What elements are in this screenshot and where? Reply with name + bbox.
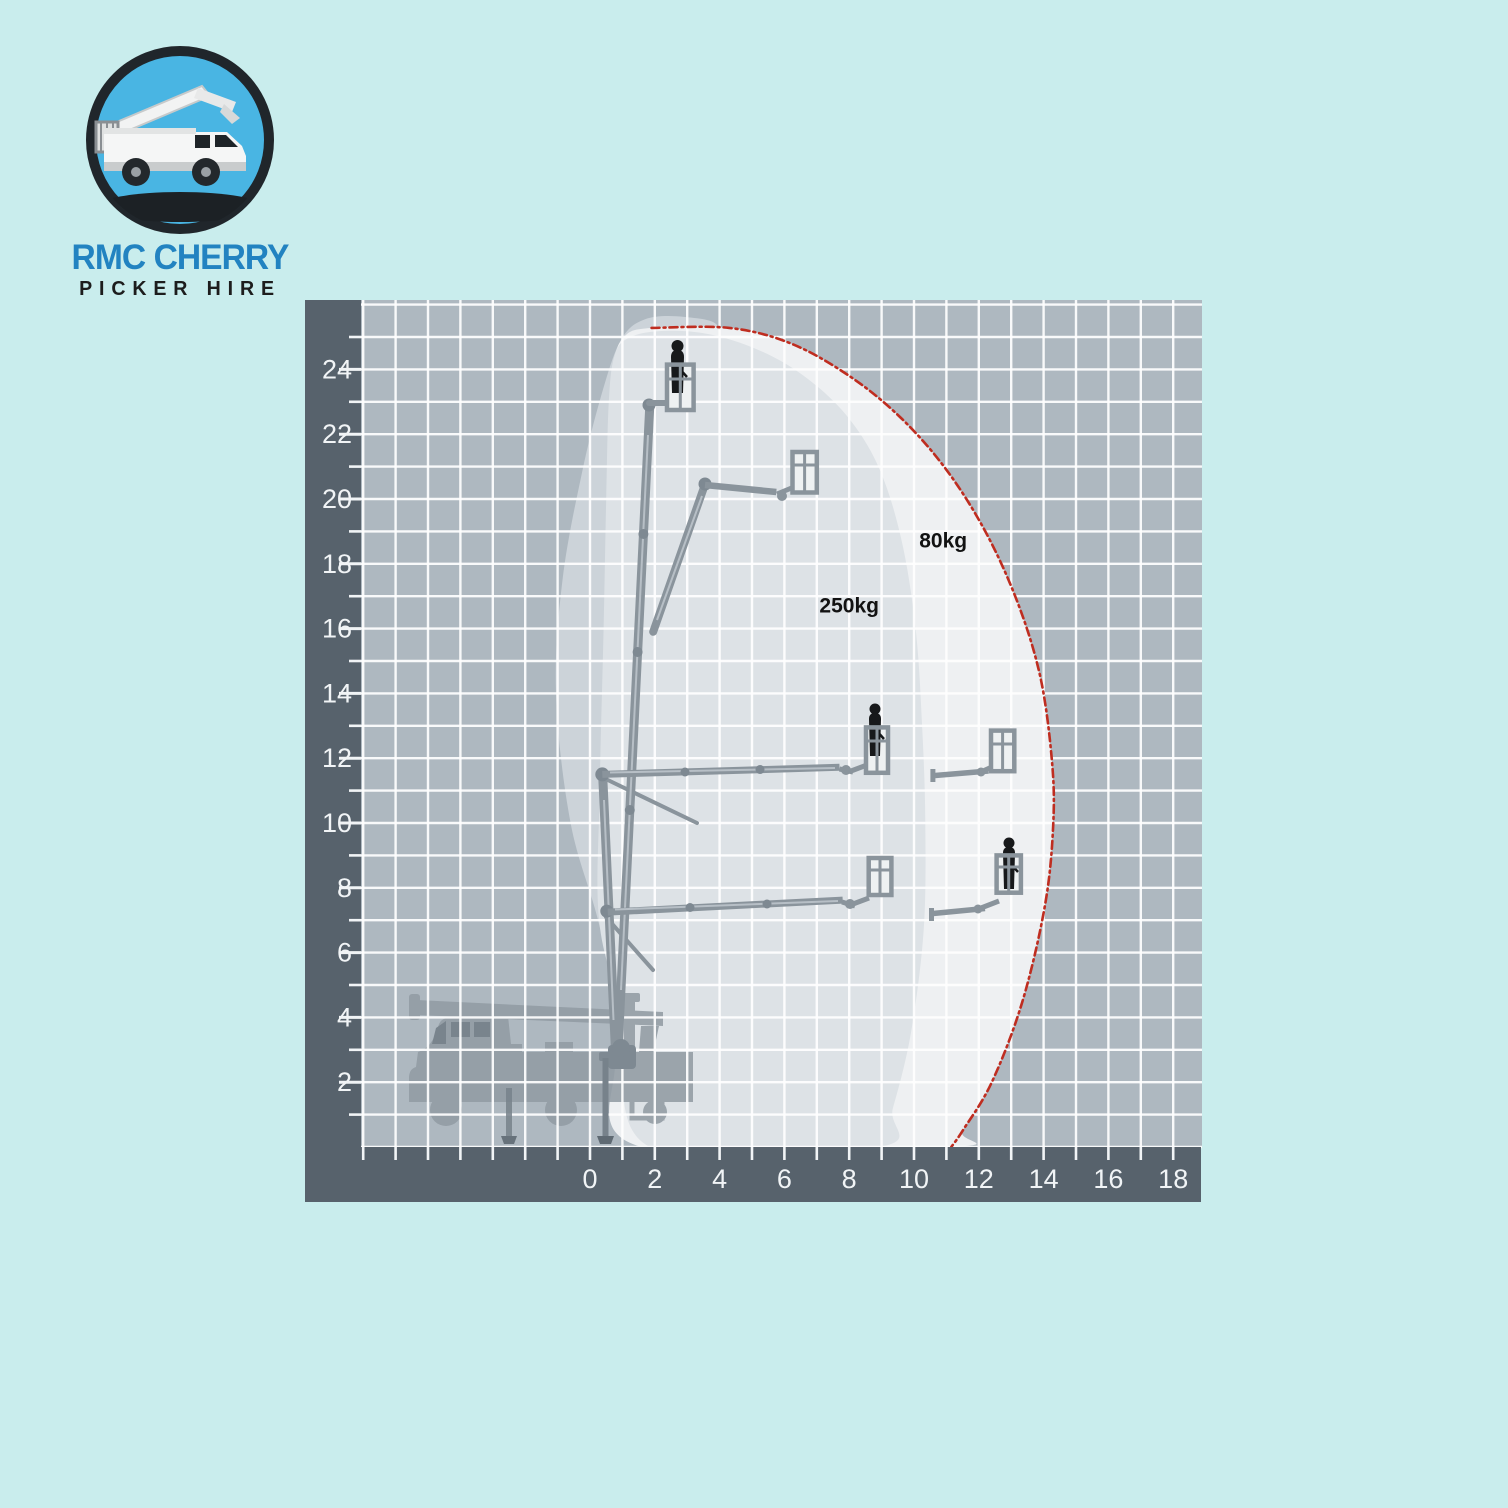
- load-label-80kg: 80kg: [919, 530, 967, 553]
- x-tick-label: 10: [899, 1164, 929, 1194]
- x-tick-label: 6: [777, 1164, 792, 1194]
- page: { "page": { "background": "#c9eded" }, "…: [0, 0, 1508, 1508]
- x-tick-label: 16: [1093, 1164, 1123, 1194]
- x-tick-label: 12: [964, 1164, 994, 1194]
- y-tick-label: 20: [322, 484, 352, 514]
- y-tick-label: 22: [322, 419, 352, 449]
- y-tick-label: 18: [322, 549, 352, 579]
- brand-emblem-truck-icon: [74, 44, 286, 240]
- y-tick-label: 4: [337, 1002, 352, 1032]
- x-tick-label: 2: [647, 1164, 662, 1194]
- y-tick-label: 10: [322, 808, 352, 838]
- x-tick-label: 4: [712, 1164, 727, 1194]
- y-tick-label: 14: [322, 678, 352, 708]
- brand-tagline: PICKER HIRE: [55, 276, 306, 302]
- y-tick-label: 16: [322, 614, 352, 644]
- truck-illustration: [409, 993, 693, 1126]
- x-tick-label: 8: [842, 1164, 857, 1194]
- x-tick-label: 18: [1158, 1164, 1188, 1194]
- y-tick-label: 24: [322, 354, 352, 384]
- reach-diagram: 80kg250kg 024681012141618246810121416182…: [305, 300, 1202, 1207]
- load-label-250kg: 250kg: [819, 594, 879, 617]
- reach-diagram-svg: 80kg250kg 024681012141618246810121416182…: [305, 300, 1202, 1207]
- y-tick-label: 12: [322, 743, 352, 773]
- x-tick-label: 0: [582, 1164, 597, 1194]
- brand-name: RMC CHERRY: [57, 240, 303, 275]
- y-tick-label: 6: [337, 938, 352, 968]
- brand-logo: RMC CHERRY PICKER HIRE: [52, 44, 308, 302]
- y-tick-label: 2: [337, 1067, 352, 1097]
- x-tick-label: 14: [1029, 1164, 1059, 1194]
- y-tick-label: 8: [337, 873, 352, 903]
